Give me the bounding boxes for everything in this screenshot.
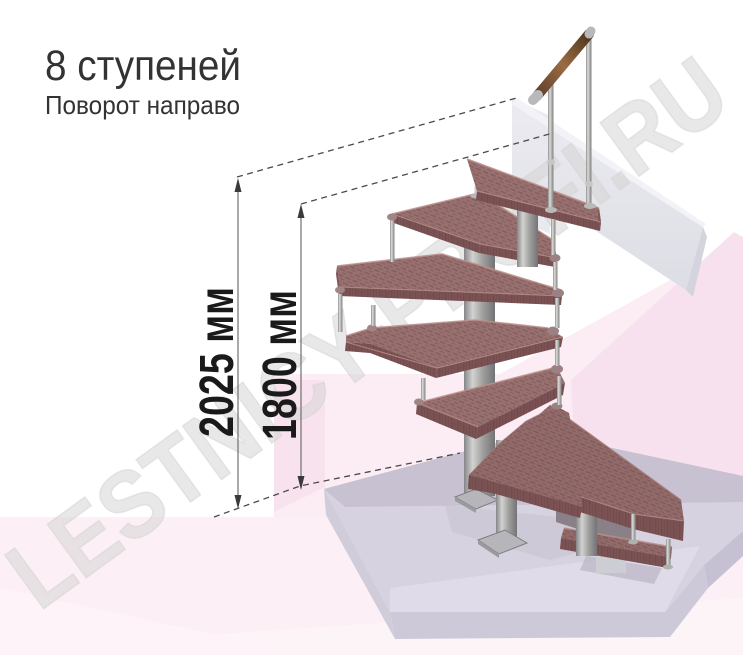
svg-text:2025 мм: 2025 мм <box>191 287 244 437</box>
svg-text:8 ступеней: 8 ступеней <box>45 42 241 90</box>
svg-text:Поворот направо: Поворот направо <box>45 90 240 120</box>
svg-text:1800 мм: 1800 мм <box>254 290 307 440</box>
